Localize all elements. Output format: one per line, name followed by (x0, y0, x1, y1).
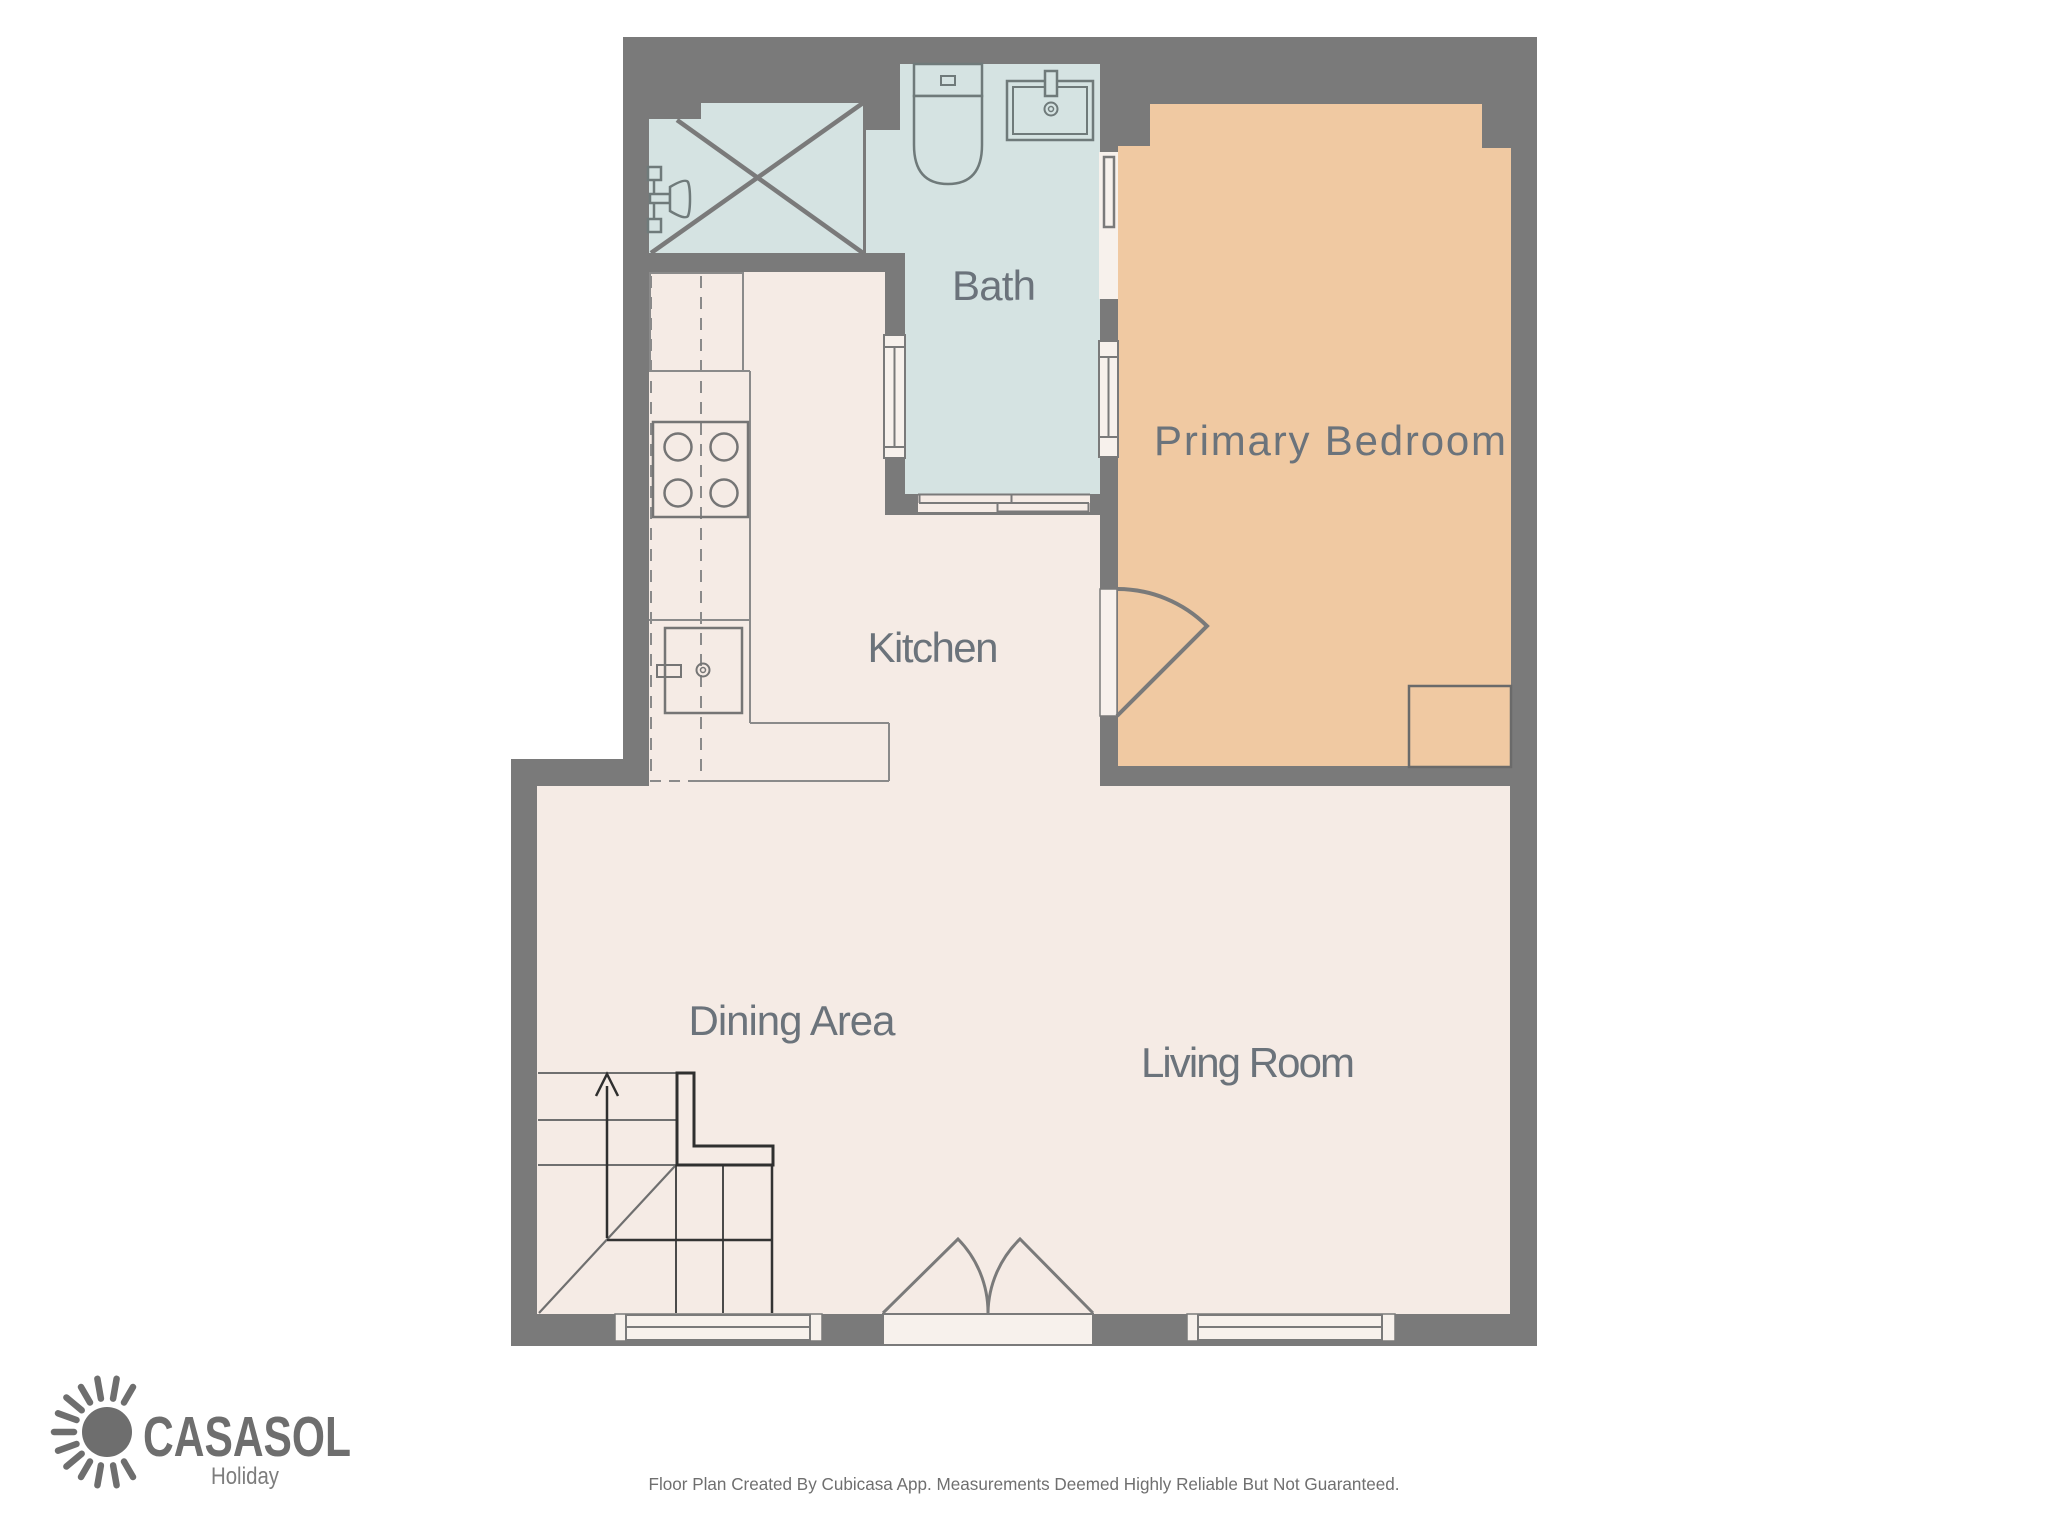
svg-text:Holiday: Holiday (211, 1463, 279, 1490)
svg-text:Primary Bedroom: Primary Bedroom (1154, 417, 1506, 464)
svg-text:Floor Plan Created By Cubicasa: Floor Plan Created By Cubicasa App. Meas… (649, 1474, 1400, 1494)
svg-text:Bath: Bath (952, 262, 1036, 309)
svg-text:Living Room: Living Room (1141, 1039, 1355, 1086)
svg-text:Kitchen: Kitchen (868, 624, 999, 671)
svg-text:CASASOL: CASASOL (143, 1405, 351, 1469)
svg-text:Dining Area: Dining Area (689, 997, 897, 1044)
